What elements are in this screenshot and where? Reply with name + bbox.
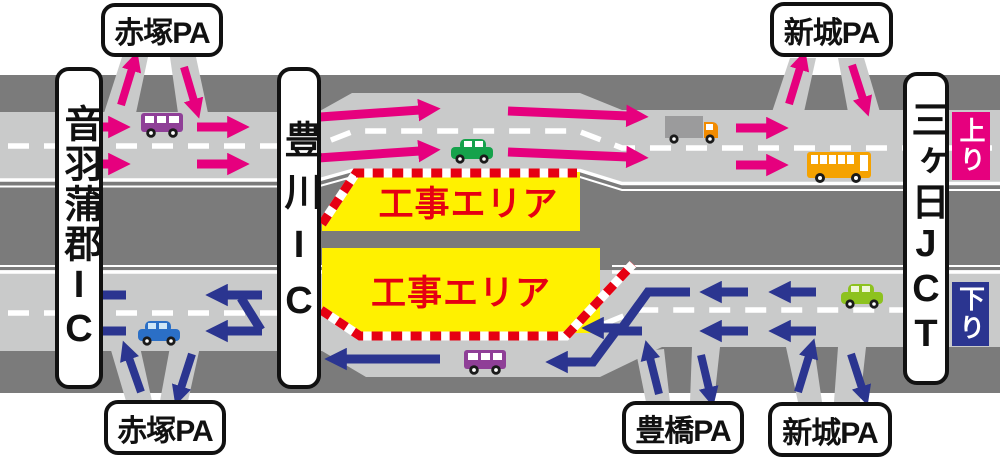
label-akatsuka-pa-bottom: 赤塚PA [104,400,226,455]
expressway-construction-diagram: 音羽蒲郡IC 豊川IC 三ヶ日JCT 赤塚PA 新城PA 赤塚PA 豊橋PA 新… [0,0,1000,461]
up-direction-text: 上り [958,117,984,175]
up-direction-badge: 上り [952,112,990,180]
akatsuka-pa-top-text: 赤塚PA [114,8,209,52]
up-arrow-long [508,152,628,157]
shinshiro-pa-bottom-text: 新城PA [782,408,877,452]
label-mikkabi-jct: 三ヶ日JCT [903,72,949,385]
up-arrow-long [508,111,628,116]
akatsuka-pa-bottom-text: 赤塚PA [117,406,212,450]
label-otowa-gamagori-ic: 音羽蒲郡IC [55,67,103,389]
construction-area-label-down: 工事エリア [322,250,600,330]
roadway-graphics [0,0,1000,461]
label-toyokawa-ic: 豊川IC [277,67,321,389]
down-direction-badge: 下り [952,282,989,346]
mikkabi-jct-text: 三ヶ日JCT [907,100,945,358]
toyohashi-pa-text: 豊橋PA [635,406,730,450]
construction-area-label-up: 工事エリア [357,173,580,230]
label-shinshiro-pa-top: 新城PA [770,2,893,57]
toyokawa-ic-text: 豊川IC [280,120,318,336]
label-akatsuka-pa-top: 赤塚PA [101,3,223,57]
label-shinshiro-pa-bottom: 新城PA [768,402,892,457]
construction-area-up-text: 工事エリア [378,176,558,227]
shinshiro-pa-top-text: 新城PA [784,8,879,52]
down-direction-text: 下り [958,285,984,343]
construction-area-down-text: 工事エリア [371,265,551,316]
label-toyohashi-pa: 豊橋PA [622,401,744,454]
otowa-gamagori-ic-text: 音羽蒲郡IC [60,104,98,352]
